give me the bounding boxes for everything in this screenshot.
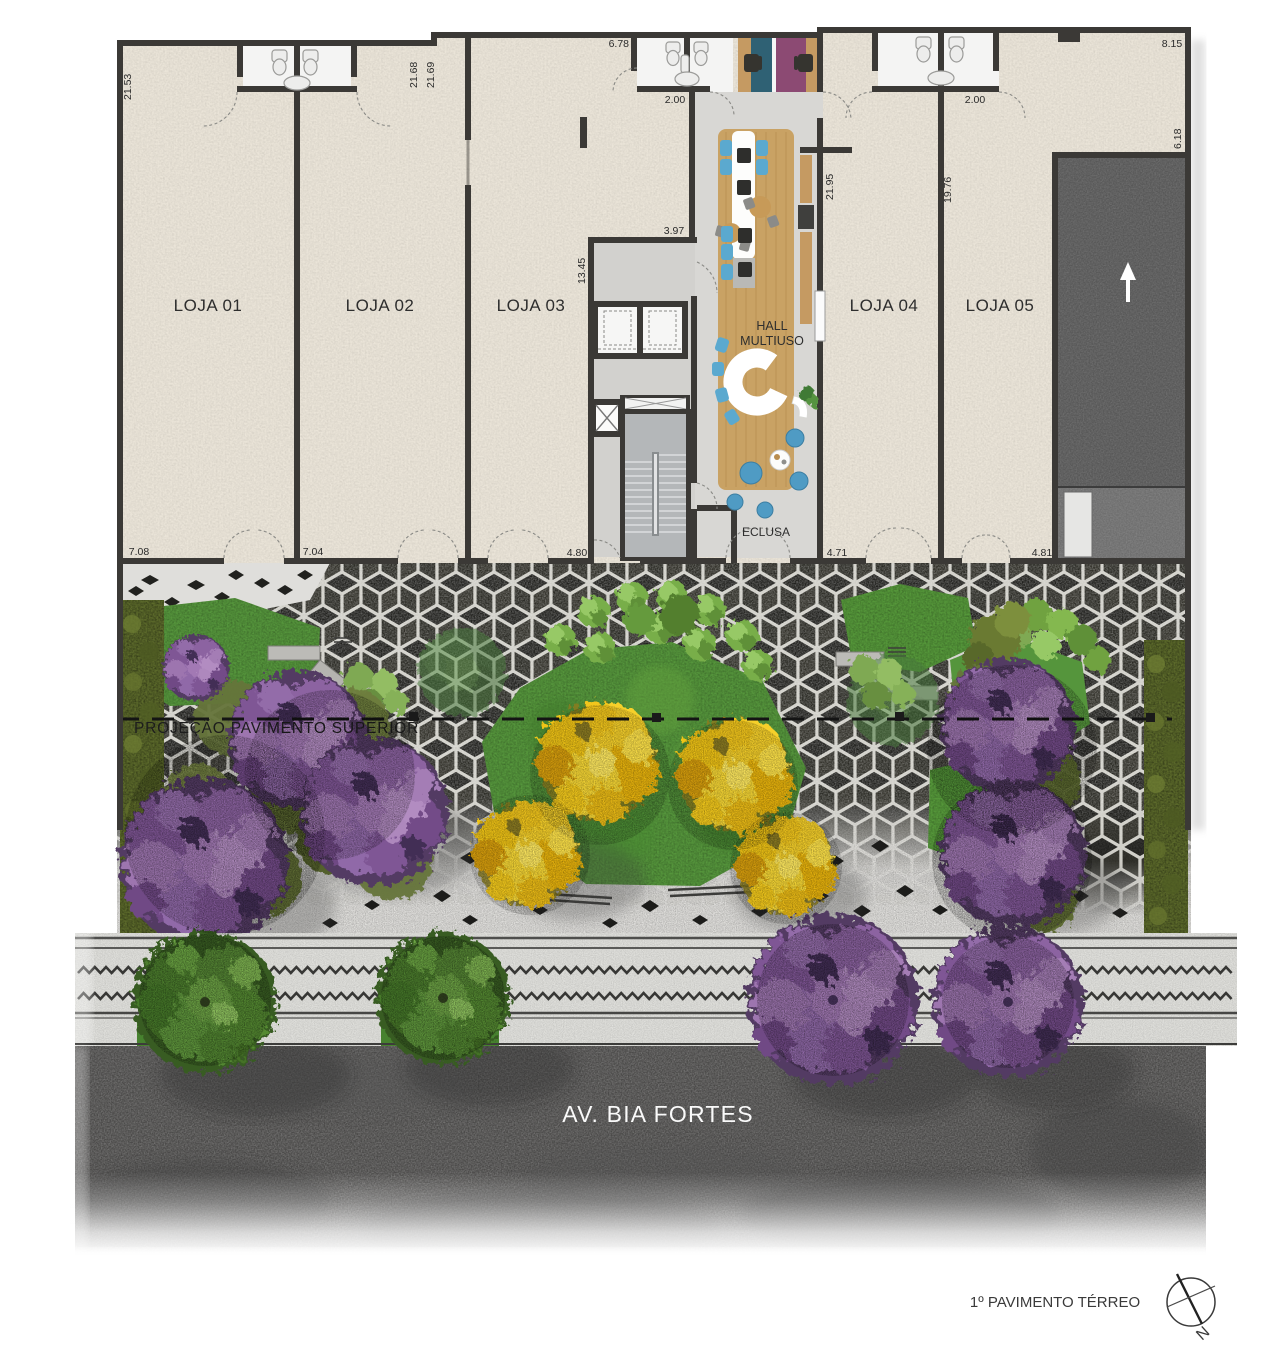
svg-text:LOJA 03: LOJA 03 (497, 296, 566, 315)
svg-text:7.08: 7.08 (129, 546, 150, 558)
svg-text:LOJA 01: LOJA 01 (174, 296, 243, 315)
svg-text:21.95: 21.95 (824, 174, 836, 200)
svg-text:13.45: 13.45 (576, 258, 588, 284)
svg-text:21.53: 21.53 (122, 74, 134, 100)
svg-text:4.80: 4.80 (567, 547, 588, 559)
svg-text:LOJA 02: LOJA 02 (346, 296, 415, 315)
svg-text:19.76: 19.76 (942, 177, 954, 203)
svg-text:HALL: HALL (756, 319, 787, 333)
svg-text:LOJA 04: LOJA 04 (850, 296, 919, 315)
svg-text:2.00: 2.00 (665, 94, 686, 106)
svg-text:3.97: 3.97 (664, 225, 685, 237)
svg-text:6.18: 6.18 (1172, 128, 1184, 149)
svg-text:6.78: 6.78 (609, 38, 630, 50)
svg-text:MULTIUSO: MULTIUSO (740, 334, 804, 348)
svg-text:ECLUSA: ECLUSA (742, 525, 790, 539)
svg-text:2.00: 2.00 (965, 94, 986, 106)
svg-text:AV. BIA FORTES: AV. BIA FORTES (562, 1101, 754, 1127)
svg-text:7.04: 7.04 (303, 546, 324, 558)
svg-text:4.71: 4.71 (827, 547, 848, 559)
svg-text:4.81: 4.81 (1032, 547, 1053, 559)
svg-text:8.15: 8.15 (1162, 38, 1183, 50)
svg-text:21.69: 21.69 (425, 62, 437, 88)
svg-text:21.68: 21.68 (408, 62, 420, 88)
svg-text:LOJA 05: LOJA 05 (966, 296, 1035, 315)
svg-text:1º PAVIMENTO TÉRREO: 1º PAVIMENTO TÉRREO (970, 1294, 1140, 1311)
